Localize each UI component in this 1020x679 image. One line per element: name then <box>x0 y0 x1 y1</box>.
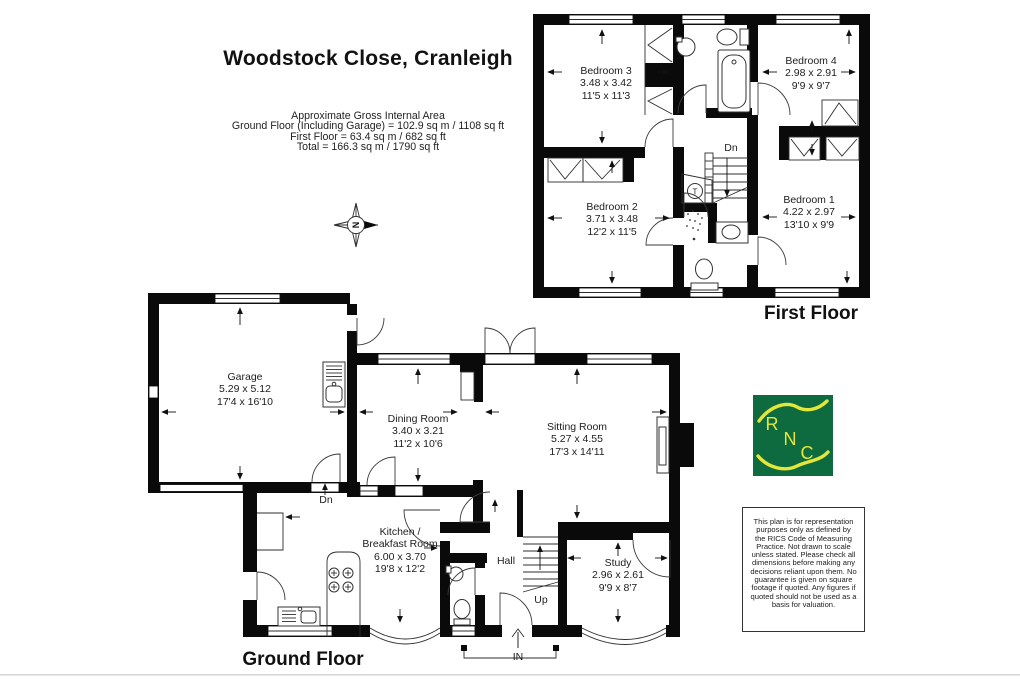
room-label-sitting-room: Sitting Room 5.27 x 4.55 17'3 x 14'11 <box>547 421 607 458</box>
toilet-icon <box>454 600 470 626</box>
logo-letter-c: C <box>801 443 814 463</box>
room-label-bedroom-2: Bedroom 2 3.71 x 3.48 12'2 x 11'5 <box>586 201 638 238</box>
garage-door-icon <box>160 485 243 492</box>
page-title: Woodstock Close, Cranleigh <box>223 47 513 71</box>
closet-icon <box>548 25 859 182</box>
floorplan-canvas: Dn T <box>0 0 1020 679</box>
stairs-up-label: Up <box>534 594 548 606</box>
room-label-study: Study 2.96 x 2.61 9'9 x 8'7 <box>592 557 644 594</box>
stairs-up-icon <box>523 537 558 592</box>
hall-label: Hall <box>497 555 515 567</box>
page-bottom-rule <box>0 674 1020 676</box>
bath-icon <box>718 50 750 112</box>
room-label-garage: Garage 5.29 x 5.12 17'4 x 16'10 <box>217 371 273 408</box>
sink-unit-icon <box>323 362 345 407</box>
ground-floor-plan: Dn Hall Up IN <box>148 293 694 663</box>
area-line: Total = 166.3 sq m / 1790 sq ft <box>232 142 504 152</box>
shower-icon <box>686 210 703 240</box>
basin-icon <box>676 37 695 56</box>
logo-letter-r: R <box>766 414 779 434</box>
entrance-label: IN <box>513 651 524 663</box>
stairs-down-icon <box>705 153 748 203</box>
basin-icon <box>716 222 748 243</box>
area-summary: Approximate Gross Internal Area Ground F… <box>232 111 504 153</box>
disclaimer-box: This plan is for representation purposes… <box>742 507 865 632</box>
logo-letter-n: N <box>784 429 797 449</box>
stove-icon <box>327 552 360 637</box>
room-label-dining-room: Dining Room 3.40 x 3.21 11'2 x 10'6 <box>388 413 449 450</box>
toilet-icon <box>691 259 718 290</box>
rnc-logo: R N C <box>753 395 833 476</box>
toilet-icon <box>717 29 749 45</box>
garage-step-label: Dn <box>319 494 333 506</box>
stairs-dn-label: Dn <box>724 142 738 154</box>
room-label-bedroom-4: Bedroom 4 2.98 x 2.91 9'9 x 9'7 <box>785 55 837 92</box>
room-label-bedroom-1: Bedroom 1 4.22 x 2.97 13'10 x 9'9 <box>783 194 835 231</box>
room-label-bedroom-3: Bedroom 3 3.48 x 3.42 11'5 x 11'3 <box>580 65 632 102</box>
floorplan-page: { "title": "Woodstock Close, Cranleigh",… <box>0 0 1020 679</box>
compass-icon: N <box>334 203 378 247</box>
tank-label: T <box>693 188 698 197</box>
first-floor-label: First Floor <box>764 303 858 325</box>
room-label-kitchen: Kitchen / Breakfast Room 6.00 x 3.70 19'… <box>362 526 437 576</box>
compass-north-label: N <box>351 222 361 229</box>
ground-floor-label: Ground Floor <box>242 649 363 671</box>
kitchen-sink-icon <box>278 607 320 626</box>
